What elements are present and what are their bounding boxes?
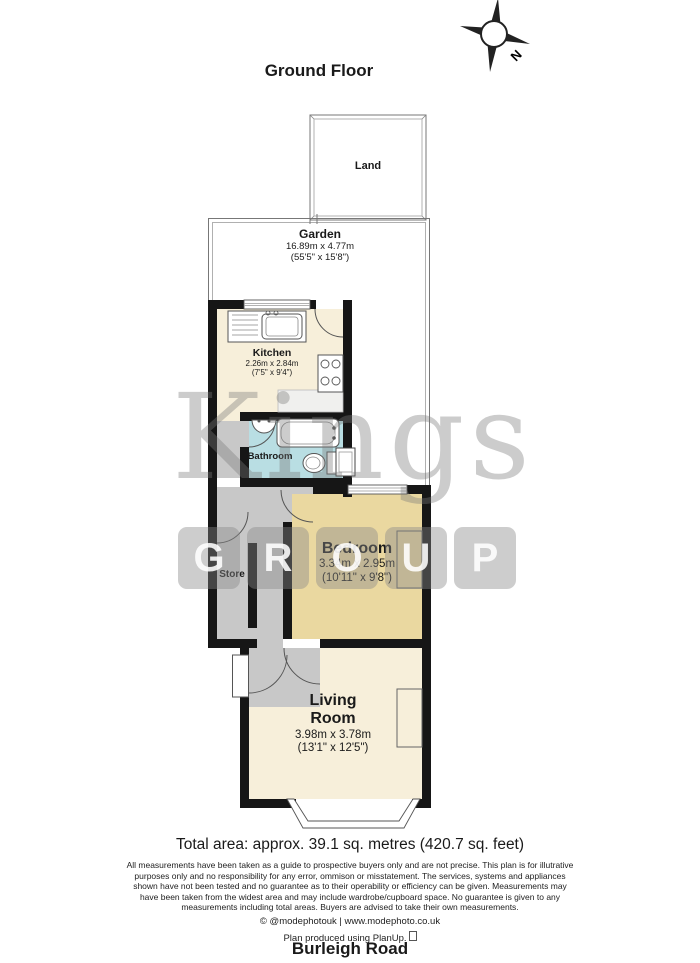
- disclaimer-line: purposes only and no responsibility for …: [0, 871, 700, 882]
- bay-window: [287, 799, 420, 828]
- bathtub: [277, 419, 339, 447]
- garden-label: Garden: [230, 228, 410, 242]
- store-label: Store: [206, 569, 258, 581]
- address-title: Burleigh Road: [0, 939, 700, 959]
- bedroom-dims-imperial: (10'11" x 9'8"): [287, 572, 427, 585]
- bedroom-label: Bedroom: [287, 540, 427, 558]
- sink-unit: [228, 311, 306, 342]
- kitchen-worktop: [278, 390, 343, 412]
- disclaimer-line: measurements including total areas. Buye…: [0, 902, 700, 913]
- living-room-dims-metric: 3.98m x 3.78m: [263, 729, 403, 742]
- kitchen-label: Kitchen: [222, 347, 322, 359]
- kitchen-dims-metric: 2.26m x 2.84m: [222, 359, 322, 368]
- disclaimer-line: shown have not been tested and no guaran…: [0, 881, 700, 892]
- front-door-panel: [233, 655, 249, 697]
- garden-label-block: Garden 16.89m x 4.77m (55'5" x 15'8"): [230, 228, 410, 264]
- bedroom-window: [348, 485, 407, 494]
- disclaimer-line: All measurements have been taken as a gu…: [0, 860, 700, 871]
- disclaimer-line: have been taken from the widest area and…: [0, 892, 700, 903]
- credit-text: © @modephotouk | www.modephoto.co.uk: [0, 917, 700, 928]
- floorplan-svg: N: [0, 0, 700, 963]
- bedroom-dims-metric: 3.34m x 2.95m: [287, 558, 427, 571]
- boiler-cupboard: [336, 448, 355, 476]
- living-room-label-1: Living: [263, 692, 403, 710]
- disclaimer: All measurements have been taken as a gu…: [0, 860, 700, 913]
- compass-north-label: N: [508, 47, 525, 64]
- bedroom-label-block: Bedroom 3.34m x 2.95m (10'11" x 9'8"): [287, 540, 427, 585]
- garden-dims-imperial: (55'5" x 15'8"): [230, 253, 410, 264]
- kitchen-dims-imperial: (7'5" x 9'4"): [222, 368, 322, 377]
- living-room-label-block: Living Room 3.98m x 3.78m (13'1" x 12'5"…: [263, 692, 403, 755]
- kitchen-window: [244, 300, 310, 309]
- land-label: Land: [310, 160, 426, 173]
- corridor-floor: [257, 522, 283, 648]
- total-area-text: Total area: approx. 39.1 sq. metres (420…: [0, 836, 700, 854]
- kitchen-label-block: Kitchen 2.26m x 2.84m (7'5" x 9'4"): [222, 347, 322, 377]
- page-title: Ground Floor: [169, 61, 469, 81]
- living-room-dims-imperial: (13'1" x 12'5"): [263, 742, 403, 755]
- bathroom-label: Bathroom: [230, 452, 310, 463]
- compass-icon: N: [460, 0, 530, 72]
- floorplan-page: N: [0, 0, 700, 963]
- living-room-label-2: Room: [263, 710, 403, 728]
